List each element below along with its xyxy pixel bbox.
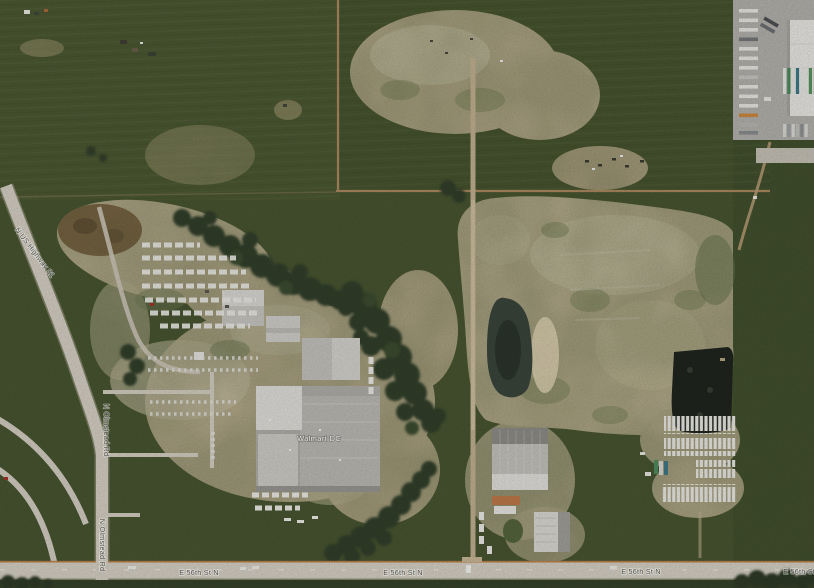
satellite-map[interactable]: N US Highway 81 N Olmstead Rd N Olmstead… [0,0,814,588]
road-label-cross-a: E 56th St N [179,568,219,577]
road-label-cross-c: E 56th St N [621,567,661,576]
building-label-walmart: Walmart DC [297,434,341,443]
map-canvas[interactable]: N US Highway 81 N Olmstead Rd N Olmstead… [0,0,814,588]
image-grain [0,0,814,588]
road-label-north-b: N Olmstead Rd [98,519,107,571]
road-label-cross-d: E 56th St N [783,567,814,576]
road-label-cross-b: E 56th St N [383,568,423,577]
road-label-north-a: N Olmstead Rd [102,404,111,456]
